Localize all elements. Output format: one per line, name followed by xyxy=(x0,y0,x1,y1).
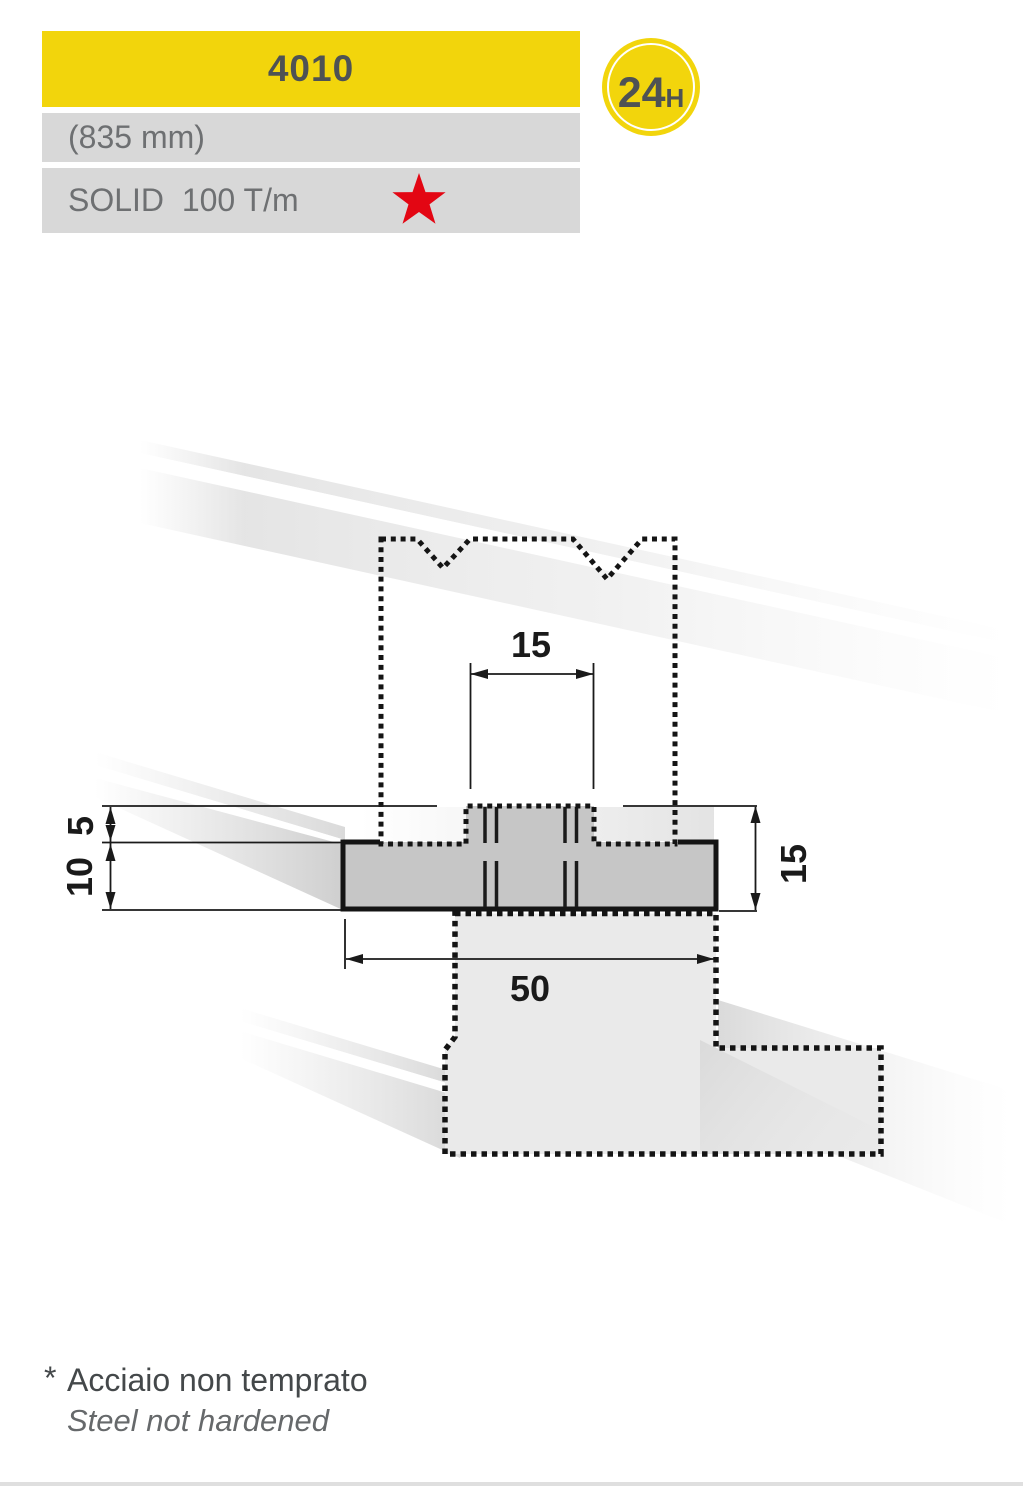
dim-slot-width: 15 xyxy=(471,624,594,789)
footnote-line1-text: Acciaio non temprato xyxy=(67,1362,368,1398)
footnote-marker: * xyxy=(44,1360,67,1397)
adapter-body-fill xyxy=(343,842,716,909)
footnote-line1: *Acciaio non temprato xyxy=(44,1360,368,1399)
dim-slot-width-label: 15 xyxy=(511,624,551,665)
dim-body-width-label: 50 xyxy=(510,968,550,1009)
footnote-line2: Steel not hardened xyxy=(67,1403,368,1439)
bottom-strip xyxy=(0,1482,1023,1486)
dim-total-height-label: 15 xyxy=(773,844,814,884)
catalog-page: 4010 24 H (835 mm) SOLID 100 T/m xyxy=(0,0,1023,1486)
lower-support xyxy=(445,914,900,1251)
technical-drawing: 15 5 10 15 xyxy=(0,0,1023,1486)
dim-body-height-label: 10 xyxy=(59,857,100,897)
dim-tang-height-label: 5 xyxy=(60,816,101,836)
footnote: *Acciaio non temprato Steel not hardened xyxy=(44,1360,368,1439)
